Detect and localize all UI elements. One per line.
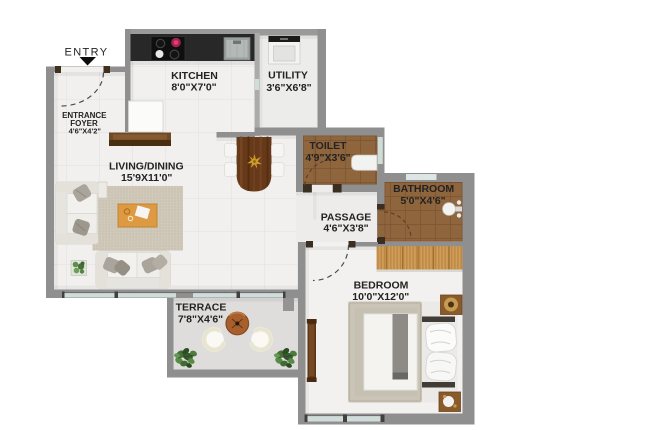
svg-text:4'6"X3'8": 4'6"X3'8" <box>323 223 368 235</box>
svg-text:5'0"X4'6": 5'0"X4'6" <box>400 195 445 207</box>
svg-text:TERRACE: TERRACE <box>176 302 227 314</box>
svg-text:8'0"X7'0": 8'0"X7'0" <box>171 82 216 94</box>
svg-text:UTILITY: UTILITY <box>268 70 308 82</box>
svg-text:4'9"X3'6": 4'9"X3'6" <box>305 152 350 164</box>
svg-text:ENTRY: ENTRY <box>64 47 108 59</box>
svg-text:7'8"X4'6": 7'8"X4'6" <box>178 314 223 326</box>
svg-text:15'9X11'0": 15'9X11'0" <box>121 172 172 184</box>
svg-text:4'6"X4'2": 4'6"X4'2" <box>69 127 102 136</box>
svg-text:KITCHEN: KITCHEN <box>171 70 218 82</box>
svg-text:BATHROOM: BATHROOM <box>393 183 454 195</box>
svg-text:LIVING/DINING: LIVING/DINING <box>109 161 184 173</box>
svg-text:TOILET: TOILET <box>309 140 347 152</box>
svg-text:10'0"X12'0": 10'0"X12'0" <box>352 291 409 303</box>
svg-text:BEDROOM: BEDROOM <box>354 280 409 292</box>
svg-text:3'6"X6'8": 3'6"X6'8" <box>266 82 311 94</box>
